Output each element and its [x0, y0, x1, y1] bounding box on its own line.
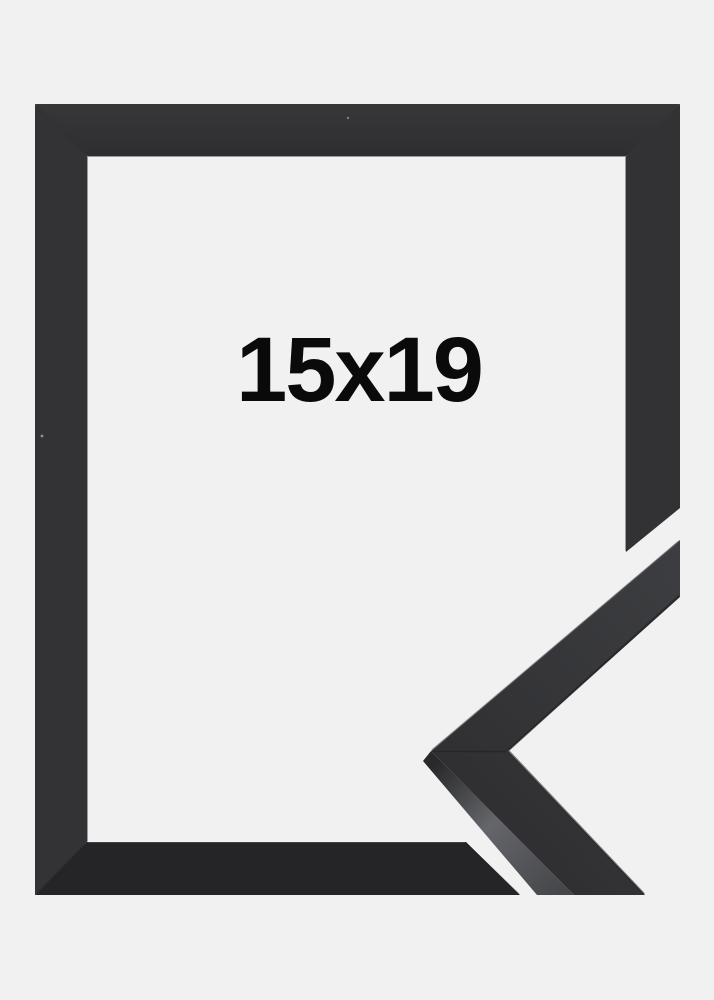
- product-photo: 15x19: [0, 0, 714, 1000]
- frame-left-bar: [35, 104, 87, 895]
- frame-top-bar: [35, 104, 680, 156]
- dust-speck: [347, 117, 349, 119]
- dust-speck: [41, 435, 44, 438]
- frame-photo-graphic: [0, 0, 714, 1000]
- size-label: 15x19: [2, 324, 714, 416]
- frame-bottom-bar: [35, 842, 520, 895]
